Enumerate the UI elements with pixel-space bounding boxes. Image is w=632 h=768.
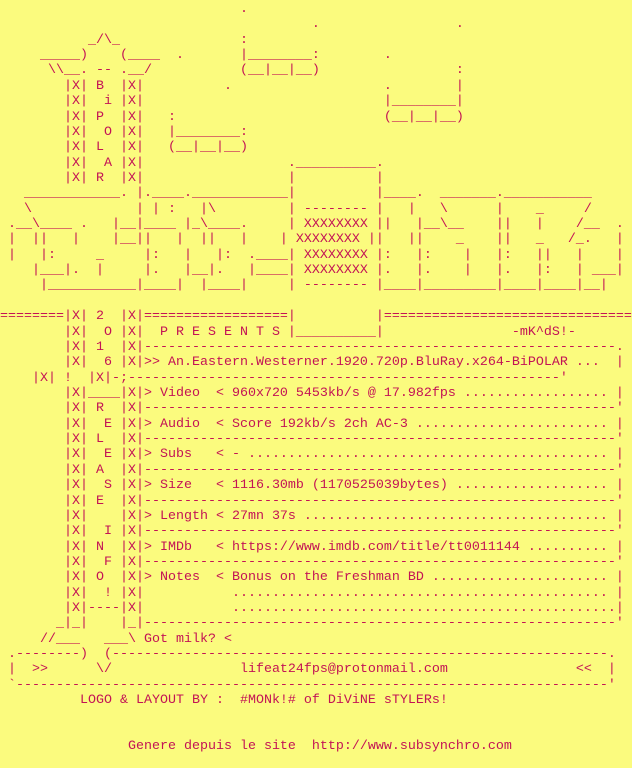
nfo-document: . . . _/\_ : _____) (____ . |________: .… xyxy=(0,0,632,768)
nfo-ascii-art: . . . _/\_ : _____) (____ . |________: .… xyxy=(0,0,632,755)
